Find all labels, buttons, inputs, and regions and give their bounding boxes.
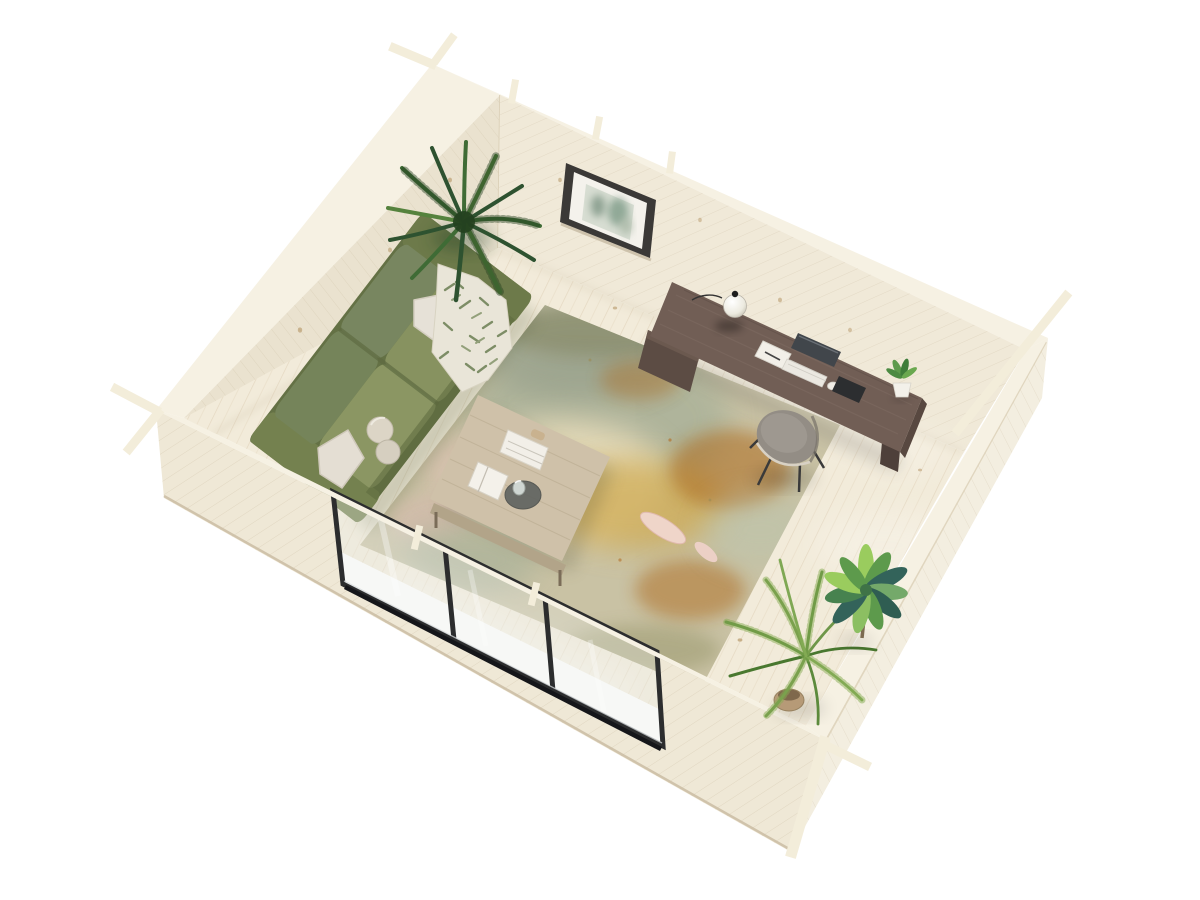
rug-speckle [709, 499, 712, 502]
render-stage [0, 0, 1200, 900]
dracaena-crown [860, 584, 872, 596]
drinking-glass [513, 481, 525, 495]
wall-tab [512, 83, 515, 100]
wall-tab [670, 155, 672, 170]
wall-tab [415, 529, 419, 546]
rug-patch-rust [635, 560, 745, 620]
floor-knot [613, 307, 617, 310]
dracaena-shadow [838, 635, 874, 649]
cabin-interior-render [0, 0, 1200, 900]
wall-tab [532, 586, 536, 602]
rug-speckle [668, 438, 671, 441]
wood-knot [778, 298, 782, 303]
rug-speckle [618, 558, 621, 561]
desk-plant-pot [893, 383, 911, 397]
wood-knot [388, 248, 392, 253]
floor-knot [738, 638, 743, 641]
art-brush-stroke [620, 217, 632, 235]
ball-cushion [376, 440, 400, 464]
wood-knot [558, 178, 562, 182]
lamp-globe [724, 295, 747, 318]
wood-knot [848, 328, 852, 332]
ball-cushion [367, 417, 393, 443]
lamp-shadow [715, 320, 743, 332]
palm-crown [453, 211, 475, 233]
art-brush-stroke [591, 195, 605, 217]
wall-tab [596, 120, 599, 136]
wood-knot [298, 327, 302, 332]
chair-leg [799, 463, 800, 492]
lamp-cap [732, 291, 738, 297]
wood-knot [698, 218, 702, 222]
wood-knot [448, 178, 452, 183]
rug-speckle [589, 359, 592, 362]
